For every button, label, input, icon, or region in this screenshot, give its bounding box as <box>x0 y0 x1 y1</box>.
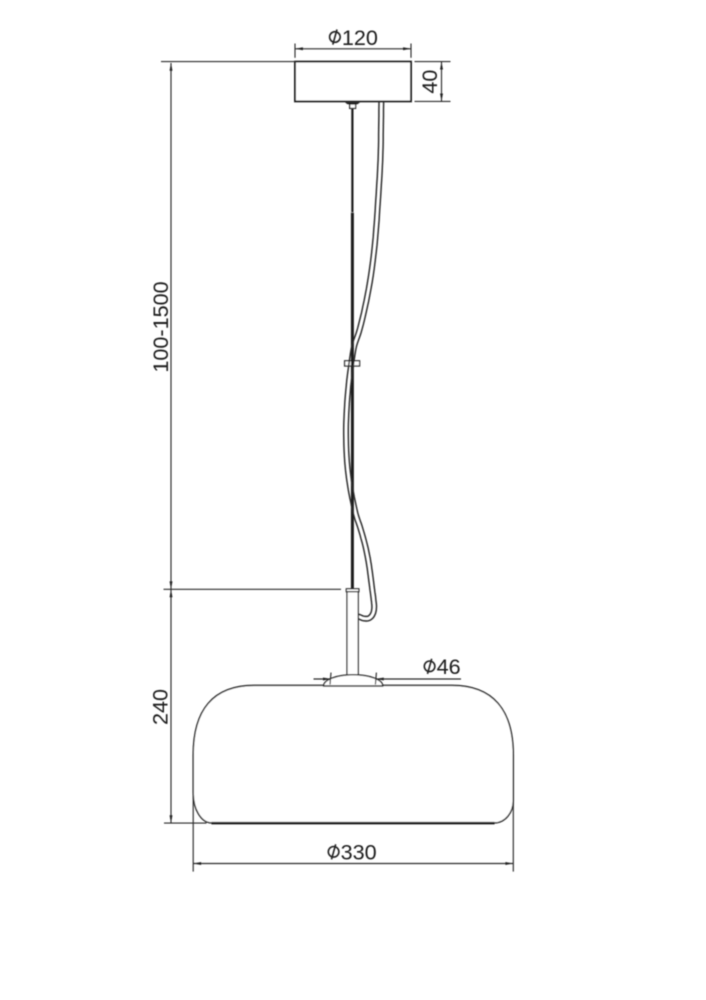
svg-text:100-1500: 100-1500 <box>148 281 173 372</box>
svg-text:46: 46 <box>437 654 461 679</box>
svg-text:240: 240 <box>147 689 172 725</box>
svg-text:40: 40 <box>417 70 442 94</box>
svg-text:330: 330 <box>341 840 377 865</box>
svg-text:120: 120 <box>342 25 378 50</box>
